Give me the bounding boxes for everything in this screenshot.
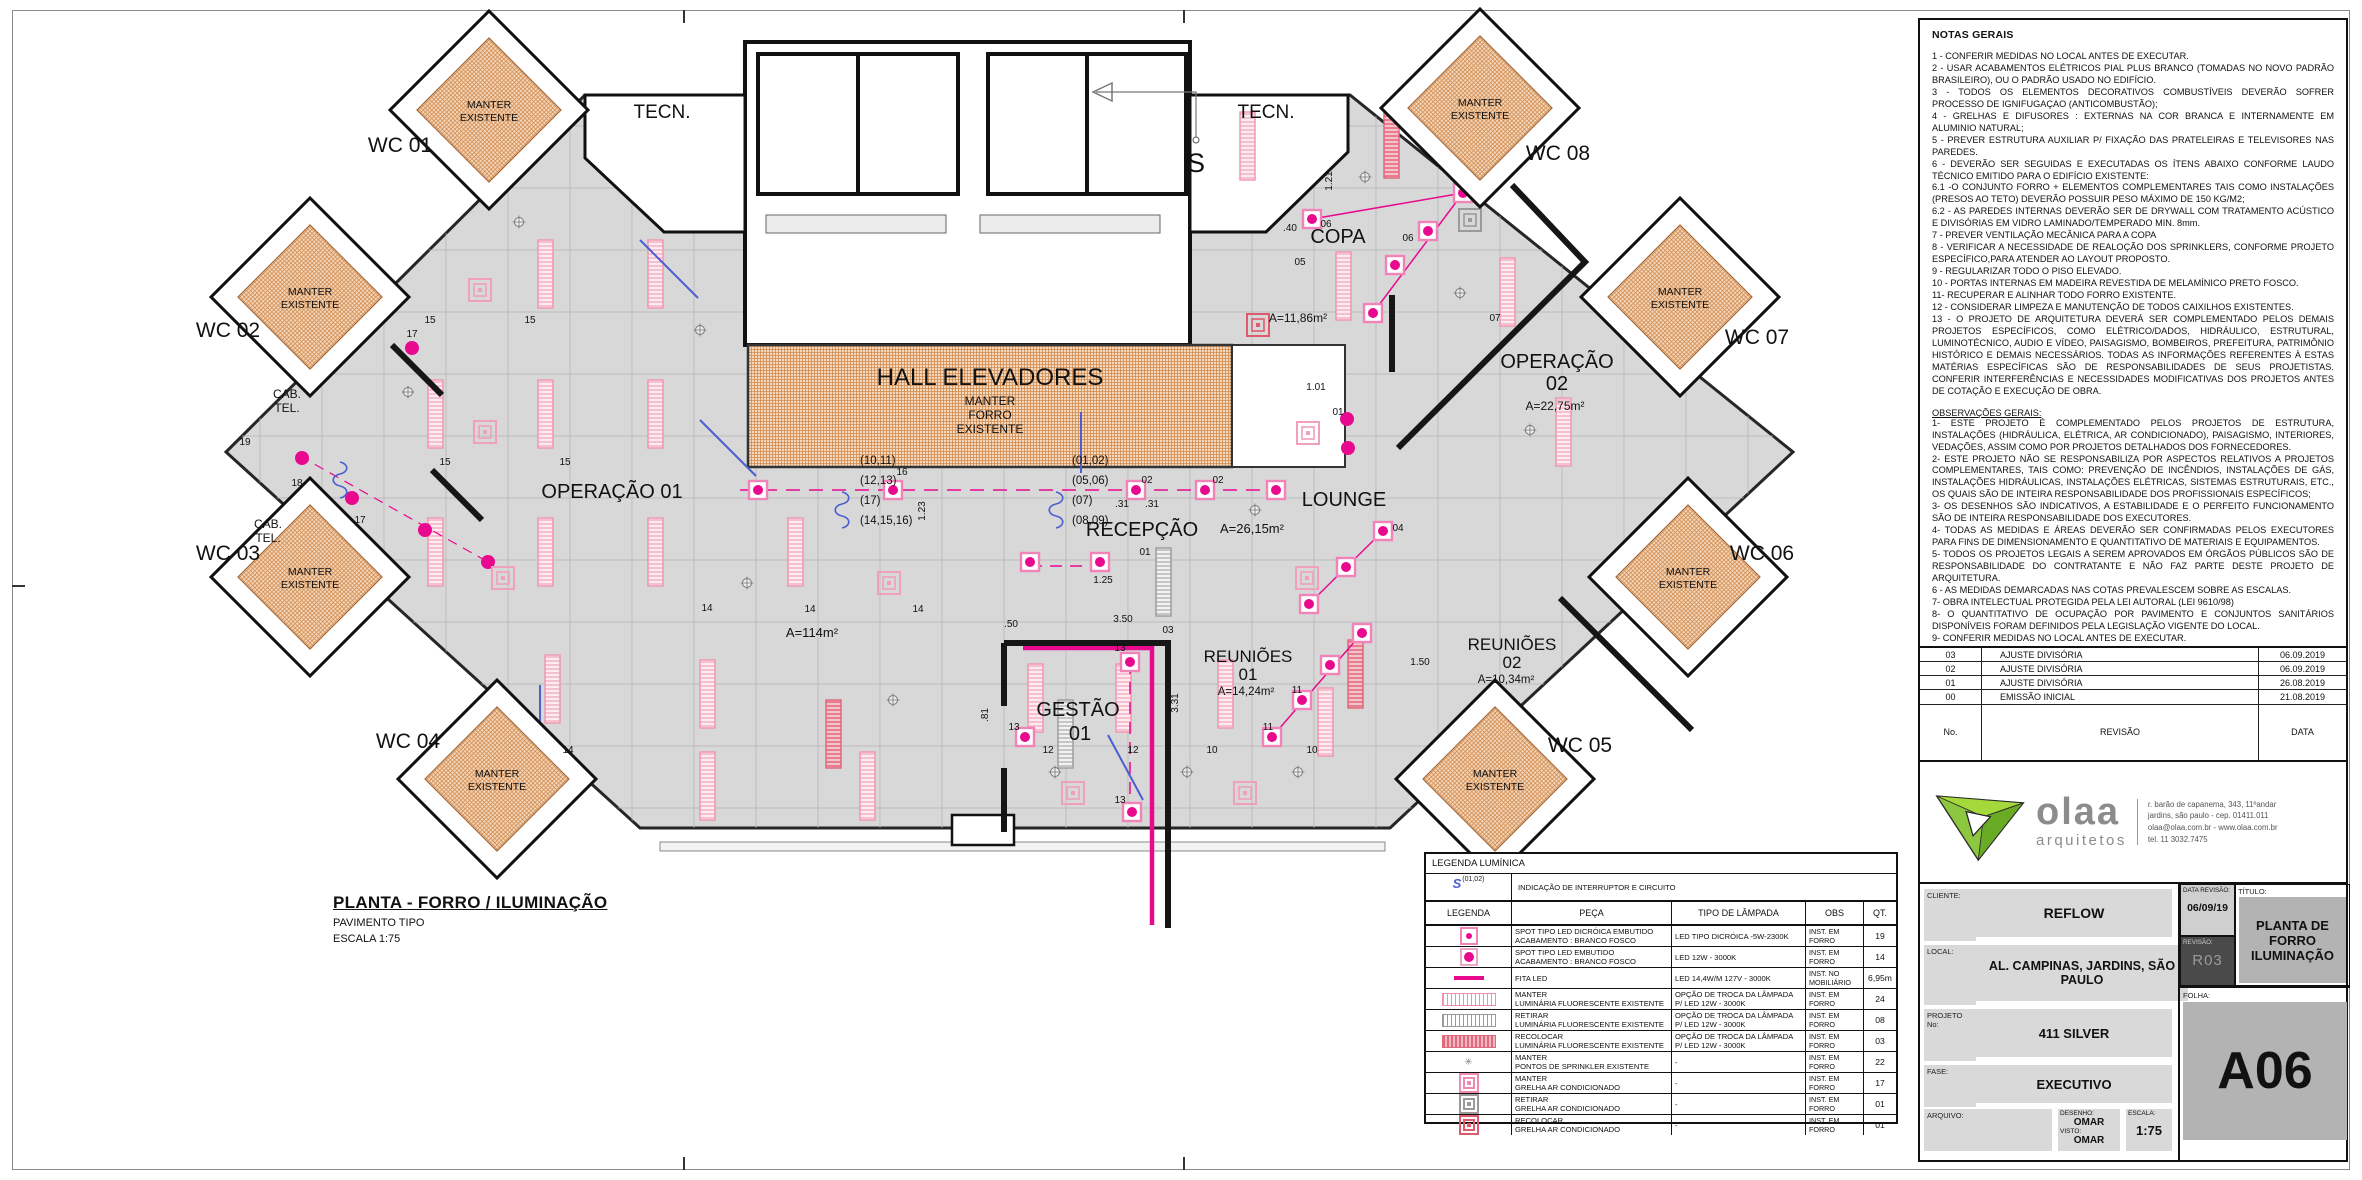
revision-description: EMISSÃO INICIAL bbox=[1982, 692, 2258, 702]
note-line: 5 - PREVER ESTRUTURA AUXILIAR P/ FIXAÇÃO… bbox=[1932, 135, 2334, 159]
note-line: 5- TODOS OS PROJETOS LEGAIS A SEREM APRO… bbox=[1932, 549, 2334, 585]
legend-peca: SPOT TIPO LED EMBUTIDOACABAMENTO : BRANC… bbox=[1512, 947, 1672, 967]
svg-text:03: 03 bbox=[1162, 625, 1174, 636]
legend-obs: INST. EM FORRO bbox=[1806, 926, 1864, 946]
legend-tipo: - bbox=[1672, 1052, 1806, 1072]
svg-text:MANTER: MANTER bbox=[288, 566, 333, 578]
revision-description: AJUSTE DIVISÓRIA bbox=[1982, 678, 2258, 688]
legend-row: SPOT TIPO LED EMBUTIDOACABAMENTO : BRANC… bbox=[1426, 947, 1896, 968]
svg-text:MANTER: MANTER bbox=[1658, 286, 1703, 298]
legend-tipo: - bbox=[1672, 1094, 1806, 1114]
escala-label: ESCALA: bbox=[2128, 1110, 2155, 1117]
note-line: 1 - CONFERIR MEDIDAS NO LOCAL ANTES DE E… bbox=[1932, 51, 2334, 63]
legend-peca: MANTERPONTOS DE SPRINKLER EXISTENTE bbox=[1512, 1052, 1672, 1072]
title-block: CLIENTE: REFLOW LOCAL: AL. CAMPINAS, JAR… bbox=[1920, 884, 2346, 1160]
legend-tipo: LED TIPO DICRÓICA -5W-2300K bbox=[1672, 926, 1806, 946]
note-line: 6 - DEVERÃO SER SEGUIDAS E EXECUTADAS OS… bbox=[1932, 159, 2334, 183]
note-line: 8 - VERIFICAR A NECESSIDADE DE REALOÇÃO … bbox=[1932, 242, 2334, 266]
revision-date: 26.08.2019 bbox=[2258, 676, 2346, 689]
legend-peca: RECOLOCARLUMINÁRIA FLUORESCENTE EXISTENT… bbox=[1512, 1031, 1672, 1051]
spot-led-icon bbox=[1426, 947, 1512, 967]
fluor-manter-icon bbox=[1426, 989, 1512, 1009]
spot-dicroica-icon bbox=[1426, 926, 1512, 946]
projeto-value: 411 SILVER bbox=[1976, 1009, 2172, 1057]
switch-legend-icon: S (01,02) bbox=[1426, 874, 1512, 900]
svg-text:A=10,34m²: A=10,34m² bbox=[1478, 674, 1535, 686]
svg-text:13: 13 bbox=[1008, 722, 1020, 733]
local-label: LOCAL: bbox=[1924, 945, 1976, 1005]
firm-logo-block: olaa arquitetos r. barão de capanema, 34… bbox=[1920, 762, 2346, 884]
svg-text:EXISTENTE: EXISTENTE bbox=[468, 781, 526, 793]
note-line: 8- O QUANTITATIVO DE OCUPAÇÃO POR PAVIME… bbox=[1932, 609, 2334, 633]
olaa-logo-icon bbox=[1928, 774, 2032, 870]
legend-tipo: OPÇÃO DE TROCA DA LÂMPADA P/ LED 12W - 3… bbox=[1672, 989, 1806, 1009]
legend-obs: INST. EM FORRO bbox=[1806, 1010, 1864, 1030]
svg-text:1.21: 1.21 bbox=[1324, 171, 1335, 191]
escala-value: 1:75 bbox=[2128, 1123, 2170, 1138]
svg-text:.31: .31 bbox=[1145, 499, 1159, 510]
svg-text:MANTER: MANTER bbox=[1473, 768, 1518, 780]
cab-tel-label: CAB. bbox=[273, 387, 301, 401]
revision-row: 03AJUSTE DIVISÓRIA06.09.2019 bbox=[1920, 648, 2346, 662]
legend-row: RETIRARLUMINÁRIA FLUORESCENTE EXISTENTEO… bbox=[1426, 1010, 1896, 1031]
sheet-info-panel: NOTAS GERAIS 1 - CONFERIR MEDIDAS NO LOC… bbox=[1918, 18, 2348, 1162]
svg-text:01: 01 bbox=[1139, 547, 1151, 558]
legend-tipo: LED 14,4W/M 127V - 3000K bbox=[1672, 968, 1806, 988]
legend-qty: 24 bbox=[1864, 994, 1896, 1004]
data-revisao-label: DATA REVISÃO: bbox=[2183, 887, 2232, 894]
svg-text:1.50: 1.50 bbox=[1410, 657, 1430, 668]
svg-text:10: 10 bbox=[1206, 745, 1218, 756]
visto-value: OMAR bbox=[2060, 1135, 2118, 1146]
svg-text:(12,13): (12,13) bbox=[860, 475, 897, 487]
fluor-retirar-icon bbox=[1426, 1010, 1512, 1030]
fluor-recolocar-icon bbox=[1426, 1031, 1512, 1051]
grelha-manter-icon bbox=[1426, 1073, 1512, 1093]
revision-date: 06.09.2019 bbox=[2258, 662, 2346, 675]
legend-peca: RETIRARGRELHA AR CONDICIONADO bbox=[1512, 1094, 1672, 1114]
svg-text:13: 13 bbox=[1114, 643, 1126, 654]
svg-text:S: S bbox=[1187, 148, 1205, 178]
revision-row: 01AJUSTE DIVISÓRIA26.08.2019 bbox=[1920, 676, 2346, 690]
wc02-label: WC 02 bbox=[196, 319, 260, 342]
svg-text:A=114m²: A=114m² bbox=[786, 625, 839, 640]
legend-qty: 6,95m bbox=[1864, 973, 1896, 983]
svg-text:MANTER: MANTER bbox=[1458, 97, 1503, 109]
revision-table: 03AJUSTE DIVISÓRIA06.09.201902AJUSTE DIV… bbox=[1920, 648, 2346, 762]
svg-text:MANTER: MANTER bbox=[1666, 566, 1711, 578]
revision-rows: 03AJUSTE DIVISÓRIA06.09.201902AJUSTE DIV… bbox=[1920, 648, 2346, 704]
svg-text:EXISTENTE: EXISTENTE bbox=[281, 299, 339, 311]
revision-description: AJUSTE DIVISÓRIA bbox=[1982, 664, 2258, 674]
svg-text:1.25: 1.25 bbox=[1093, 575, 1113, 586]
data-revisao-value: 06/09/19 bbox=[2183, 902, 2232, 914]
svg-text:14: 14 bbox=[912, 604, 924, 615]
fase-value: EXECUTIVO bbox=[1976, 1065, 2172, 1103]
firm-name-sub: arquitetos bbox=[2036, 832, 2127, 849]
cliente-value: REFLOW bbox=[1976, 889, 2172, 937]
gestao-label: GESTÃO bbox=[1036, 697, 1119, 721]
svg-text:1.01: 1.01 bbox=[1306, 382, 1326, 393]
projeto-label: PROJETO No: bbox=[1924, 1009, 1976, 1061]
note-line: 2 - USAR ACABAMENTOS ELÉTRICOS PIAL PLUS… bbox=[1932, 63, 2334, 87]
svg-text:06: 06 bbox=[1320, 219, 1332, 230]
legend-peca: MANTERGRELHA AR CONDICIONADO bbox=[1512, 1073, 1672, 1093]
wc01-label: WC 01 bbox=[368, 134, 432, 157]
wc06-label: WC 06 bbox=[1730, 542, 1794, 565]
operacao02-label: OPERAÇÃO bbox=[1500, 349, 1613, 373]
legend-row: RECOLOCARLUMINÁRIA FLUORESCENTE EXISTENT… bbox=[1426, 1031, 1896, 1052]
revision-footer: No. REVISÃO DATA bbox=[1920, 704, 2346, 761]
svg-text:TEL.: TEL. bbox=[274, 401, 299, 415]
note-line: 1- ESTE PROJETO É COMPLEMENTADO PELOS PR… bbox=[1932, 418, 2334, 454]
reunioes01-label: REUNIÕES bbox=[1204, 647, 1293, 666]
legend-peca: SPOT TIPO LED DICRÓICA EMBUTIDOACABAMENT… bbox=[1512, 926, 1672, 946]
svg-text:19: 19 bbox=[239, 437, 251, 448]
note-line: 3- OS DESENHOS SÃO INDICATIVOS, A ESTABI… bbox=[1932, 501, 2334, 525]
svg-text:13: 13 bbox=[1114, 795, 1126, 806]
balcony-strip bbox=[660, 842, 1385, 851]
legend-headers: LEGENDA PEÇA TIPO DE LÂMPADA OBS QT. bbox=[1426, 902, 1896, 926]
svg-text:14: 14 bbox=[804, 604, 816, 615]
legend-interruptor-desc: INDICAÇÃO DE INTERRUPTOR E CIRCUITO bbox=[1512, 883, 1896, 892]
svg-text:.81: .81 bbox=[980, 708, 991, 722]
svg-text:MANTER: MANTER bbox=[288, 286, 333, 298]
legend-peca: MANTERLUMINÁRIA FLUORESCENTE EXISTENTE bbox=[1512, 989, 1672, 1009]
fita-led-icon bbox=[1426, 968, 1512, 988]
legend-obs: INST. EM FORRO bbox=[1806, 1052, 1864, 1072]
legend-qty: 03 bbox=[1864, 1036, 1896, 1046]
svg-text:10: 10 bbox=[1306, 745, 1318, 756]
svg-text:(05,06): (05,06) bbox=[1072, 475, 1109, 487]
notes-list: 1 - CONFERIR MEDIDAS NO LOCAL ANTES DE E… bbox=[1932, 51, 2334, 398]
wc08-label: WC 08 bbox=[1526, 142, 1590, 165]
note-line: 6 - AS MEDIDAS DEMARCADAS NAS COTAS PREV… bbox=[1932, 585, 2334, 597]
desenho-value: OMAR bbox=[2060, 1117, 2118, 1128]
general-notes: NOTAS GERAIS 1 - CONFERIR MEDIDAS NO LOC… bbox=[1920, 20, 2346, 648]
revision-number: 00 bbox=[1920, 690, 1982, 703]
room-label-tecn-right: TECN. bbox=[1238, 102, 1295, 123]
legend-obs: INST. EM FORRO bbox=[1806, 989, 1864, 1009]
svg-text:A=11,86m²: A=11,86m² bbox=[1269, 311, 1327, 325]
svg-text:EXISTENTE: EXISTENTE bbox=[1451, 110, 1509, 122]
elevator-core bbox=[745, 42, 1190, 345]
legend-row: ✳MANTERPONTOS DE SPRINKLER EXISTENTE-INS… bbox=[1426, 1052, 1896, 1073]
svg-text:1.23: 1.23 bbox=[917, 501, 928, 521]
revision-date: 06.09.2019 bbox=[2258, 648, 2346, 661]
svg-text:02: 02 bbox=[1503, 653, 1522, 672]
revisao-cell: REVISÃO: R03 bbox=[2180, 936, 2235, 986]
svg-text:11: 11 bbox=[1292, 685, 1303, 696]
legend-obs: INST. EM FORRO bbox=[1806, 947, 1864, 967]
reunioes02-label: REUNIÕES bbox=[1468, 635, 1557, 654]
note-line: 10 - PORTAS INTERNAS EM MADEIRA REVESTID… bbox=[1932, 278, 2334, 290]
svg-text:EXISTENTE: EXISTENTE bbox=[1659, 579, 1717, 591]
legend-row: MANTERGRELHA AR CONDICIONADO-INST. EM FO… bbox=[1426, 1073, 1896, 1094]
legend-peca: RETIRARLUMINÁRIA FLUORESCENTE EXISTENTE bbox=[1512, 1010, 1672, 1030]
note-line: 4- TODAS AS MEDIDAS E ÁREAS DEVERÃO SER … bbox=[1932, 525, 2334, 549]
legend-tipo: - bbox=[1672, 1115, 1806, 1135]
grelha-retirar-icon bbox=[1426, 1094, 1512, 1114]
svg-text:02: 02 bbox=[1212, 475, 1224, 486]
firm-address: r. barão de capanema, 343, 11ºandar jard… bbox=[2137, 799, 2278, 846]
legend-qty: 01 bbox=[1864, 1120, 1896, 1130]
revisao-label: REVISÃO: bbox=[2183, 939, 2232, 946]
legend-tipo: OPÇÃO DE TROCA DA LÂMPADA P/ LED 12W - 3… bbox=[1672, 1031, 1806, 1051]
lounge-label: LOUNGE bbox=[1302, 489, 1386, 511]
legend-peca: FITA LED bbox=[1512, 968, 1672, 988]
svg-text:.31: .31 bbox=[1115, 499, 1129, 510]
visto-label: VISTO: bbox=[2060, 1128, 2081, 1135]
svg-text:06: 06 bbox=[1402, 233, 1414, 244]
legend-obs: INST. EM FORRO bbox=[1806, 1031, 1864, 1051]
observations-title: OBSERVAÇÕES GERAIS: bbox=[1932, 408, 2334, 418]
note-line: 4 - GRELHAS E DIFUSORES : EXTERNAS NA CO… bbox=[1932, 111, 2334, 135]
data-revisao-cell: DATA REVISÃO: 06/09/19 bbox=[2180, 884, 2235, 936]
legend-obs: INST. NO MOBILIÁRIO bbox=[1806, 968, 1864, 988]
svg-text:12: 12 bbox=[1042, 745, 1054, 756]
revision-description: AJUSTE DIVISÓRIA bbox=[1982, 650, 2258, 660]
legend-row: RETIRARGRELHA AR CONDICIONADO-INST. EM F… bbox=[1426, 1094, 1896, 1115]
legend-qty: 01 bbox=[1864, 1099, 1896, 1109]
desenho-label: DESENHO: bbox=[2060, 1110, 2094, 1117]
svg-text:17: 17 bbox=[354, 515, 366, 526]
wc04-label: WC 04 bbox=[376, 730, 441, 753]
svg-text:17: 17 bbox=[406, 329, 418, 340]
revision-number: 01 bbox=[1920, 676, 1982, 689]
drawing-title-text: PLANTA - FORRO / ILUMINAÇÃO bbox=[333, 893, 663, 913]
note-line: 2- ESTE PROJETO NÃO SE RESPONSABILIZA PO… bbox=[1932, 454, 2334, 502]
wc03-label: WC 03 bbox=[196, 542, 260, 565]
desenho-visto-cell: DESENHO: OMAR VISTO: OMAR bbox=[2058, 1109, 2120, 1151]
legend-row: FITA LEDLED 14,4W/M 127V - 3000KINST. NO… bbox=[1426, 968, 1896, 989]
note-line: 7- OBRA INTELECTUAL PROTEGIDA PELA LEI A… bbox=[1932, 597, 2334, 609]
svg-text:TEL.: TEL. bbox=[255, 531, 280, 545]
svg-text:MANTER: MANTER bbox=[475, 768, 520, 780]
cab-tel-label2: CAB. bbox=[254, 517, 282, 531]
revision-row: 02AJUSTE DIVISÓRIA06.09.2019 bbox=[1920, 662, 2346, 676]
svg-text:01: 01 bbox=[1239, 665, 1258, 684]
titulo-label: TÍTULO: bbox=[2238, 887, 2347, 896]
revisao-value: R03 bbox=[2183, 952, 2232, 969]
revision-date: 21.08.2019 bbox=[2258, 690, 2346, 703]
arquivo-cell: ARQUIVO: bbox=[1924, 1109, 2052, 1151]
svg-text:.50: .50 bbox=[1004, 619, 1018, 630]
svg-text:(10,11): (10,11) bbox=[860, 455, 896, 467]
revision-row: 00EMISSÃO INICIAL21.08.2019 bbox=[1920, 690, 2346, 703]
grelha-recolocar-icon bbox=[1426, 1115, 1512, 1135]
fase-label: FASE: bbox=[1924, 1065, 1976, 1107]
svg-text:A=26,15m²: A=26,15m² bbox=[1220, 521, 1285, 536]
cliente-label: CLIENTE: bbox=[1924, 889, 1976, 941]
firm-name: olaa bbox=[2036, 795, 2127, 829]
folha-label: FOLHA: bbox=[2183, 991, 2347, 1000]
svg-text:A=14,24m²: A=14,24m² bbox=[1218, 686, 1275, 698]
note-line: 9- CONFERIR MEDIDAS NO LOCAL ANTES DE EX… bbox=[1932, 633, 2334, 645]
svg-text:01: 01 bbox=[1332, 407, 1344, 418]
note-line: 6.1 -O CONJUNTO FORRO + ELEMENTOS COMPLE… bbox=[1932, 182, 2334, 206]
svg-text:05: 05 bbox=[1294, 257, 1306, 268]
legend-tipo: OPÇÃO DE TROCA DA LÂMPADA P/ LED 12W - 3… bbox=[1672, 1010, 1806, 1030]
svg-text:EXISTENTE: EXISTENTE bbox=[460, 112, 518, 124]
obs-list: 1- ESTE PROJETO É COMPLEMENTADO PELOS PR… bbox=[1932, 418, 2334, 648]
notes-title: NOTAS GERAIS bbox=[1932, 29, 2334, 41]
note-line: 13 - O PROJETO DE ARQUITETURA DEVERÁ SER… bbox=[1932, 314, 2334, 398]
legend-qty: 14 bbox=[1864, 952, 1896, 962]
note-line: 12 - CONSIDERAR LIMPEZA E MANUTENÇÃO DE … bbox=[1932, 302, 2334, 314]
svg-text:14: 14 bbox=[701, 603, 713, 614]
legend-obs: INST. EM FORRO bbox=[1806, 1094, 1864, 1114]
svg-text:EXISTENTE: EXISTENTE bbox=[1651, 299, 1709, 311]
svg-text:(07): (07) bbox=[1072, 495, 1093, 507]
folha-cell: FOLHA: A06 bbox=[2180, 986, 2350, 1154]
firm-wordmark: olaa arquitetos bbox=[2036, 795, 2127, 848]
note-line: 9 - REGULARIZAR TODO O PISO ELEVADO. bbox=[1932, 266, 2334, 278]
svg-text:15: 15 bbox=[524, 315, 536, 326]
legend-row: RECOLOCARGRELHA AR CONDICIONADO-INST. EM… bbox=[1426, 1115, 1896, 1135]
revision-number: 03 bbox=[1920, 648, 1982, 661]
drawing-title: PLANTA - FORRO / ILUMINAÇÃO PAVIMENTO TI… bbox=[333, 893, 663, 945]
svg-text:18: 18 bbox=[291, 478, 303, 489]
svg-text:02: 02 bbox=[1546, 373, 1568, 395]
titulo-value: PLANTA DE FORRO ILUMINAÇÃO bbox=[2239, 897, 2346, 983]
titulo-cell: TÍTULO: PLANTA DE FORRO ILUMINAÇÃO bbox=[2235, 884, 2350, 986]
folha-value: A06 bbox=[2183, 1002, 2347, 1140]
note-line: 3 - TODOS OS ELEMENTOS DECORATIVOS COMBU… bbox=[1932, 87, 2334, 111]
legend-tipo: - bbox=[1672, 1073, 1806, 1093]
escala-cell: ESCALA: 1:75 bbox=[2126, 1109, 2172, 1151]
note-line: 7 - PREVER VENTILAÇÃO MECÂNICA PARA A CO… bbox=[1932, 230, 2334, 242]
legend-qty: 17 bbox=[1864, 1078, 1896, 1088]
svg-text:15: 15 bbox=[439, 457, 451, 468]
svg-text:15: 15 bbox=[424, 315, 436, 326]
svg-text:A=22,75m²: A=22,75m² bbox=[1525, 399, 1584, 413]
hall-label: HALL ELEVADORES bbox=[877, 364, 1104, 391]
legend-row: SPOT TIPO LED DICRÓICA EMBUTIDOACABAMENT… bbox=[1426, 926, 1896, 947]
arquivo-label: ARQUIVO: bbox=[1924, 1109, 1967, 1122]
svg-text:EXISTENTE: EXISTENTE bbox=[957, 422, 1024, 436]
wc07-label: WC 07 bbox=[1725, 326, 1789, 349]
copa-label: COPA bbox=[1310, 226, 1366, 248]
legend-obs: INST. EM FORRO bbox=[1806, 1073, 1864, 1093]
legend-obs: INST. EM FORRO bbox=[1806, 1115, 1864, 1135]
svg-text:3.31: 3.31 bbox=[1170, 693, 1181, 713]
legend-qty: 22 bbox=[1864, 1057, 1896, 1067]
svg-text:3.50: 3.50 bbox=[1113, 614, 1133, 625]
legend-tipo: LED 12W - 3000K bbox=[1672, 947, 1806, 967]
svg-text:12: 12 bbox=[1127, 745, 1139, 756]
svg-text:EXISTENTE: EXISTENTE bbox=[1466, 781, 1524, 793]
note-line: 6.2 - AS PAREDES INTERNAS DEVERÃO SER DE… bbox=[1932, 206, 2334, 230]
local-value: AL. CAMPINAS, JARDINS, SÃO PAULO bbox=[1976, 945, 2188, 1001]
drawing-subtitle: PAVIMENTO TIPO bbox=[333, 917, 663, 929]
legend-table: LEGENDA LUMÍNICA S (01,02) INDICAÇÃO DE … bbox=[1424, 852, 1898, 1124]
legend-title: LEGENDA LUMÍNICA bbox=[1426, 854, 1896, 874]
sprinkler-icon: ✳ bbox=[1426, 1052, 1512, 1072]
svg-text:14: 14 bbox=[562, 745, 574, 756]
note-line: 11- RECUPERAR E ALINHAR TODO FORRO EXIST… bbox=[1932, 290, 2334, 302]
svg-text:01: 01 bbox=[1069, 723, 1091, 745]
svg-text:02: 02 bbox=[1141, 475, 1153, 486]
svg-text:FORRO: FORRO bbox=[968, 408, 1011, 422]
svg-text:.40: .40 bbox=[1283, 223, 1297, 234]
legend-peca: RECOLOCARGRELHA AR CONDICIONADO bbox=[1512, 1115, 1672, 1135]
legend-row: MANTERLUMINÁRIA FLUORESCENTE EXISTENTEOP… bbox=[1426, 989, 1896, 1010]
svg-text:MANTER: MANTER bbox=[965, 394, 1016, 408]
svg-text:(08,09): (08,09) bbox=[1072, 515, 1109, 527]
svg-text:MANTER: MANTER bbox=[467, 99, 512, 111]
svg-text:EXISTENTE: EXISTENTE bbox=[281, 579, 339, 591]
operacao01-label: OPERAÇÃO 01 bbox=[541, 479, 682, 503]
svg-text:04: 04 bbox=[1392, 523, 1404, 534]
drawing-scale: ESCALA 1:75 bbox=[333, 933, 663, 945]
revision-number: 02 bbox=[1920, 662, 1982, 675]
svg-text:16: 16 bbox=[896, 467, 908, 478]
wc05-label: WC 05 bbox=[1548, 734, 1612, 757]
svg-text:(01,02): (01,02) bbox=[1072, 455, 1109, 467]
svg-text:(17): (17) bbox=[860, 495, 881, 507]
legend-rows: SPOT TIPO LED DICRÓICA EMBUTIDOACABAMENT… bbox=[1426, 926, 1896, 1135]
legend-qty: 19 bbox=[1864, 931, 1896, 941]
svg-text:(14,15,16): (14,15,16) bbox=[860, 515, 913, 527]
svg-text:15: 15 bbox=[559, 457, 571, 468]
svg-text:11: 11 bbox=[1263, 722, 1274, 733]
room-label-tecn-left: TECN. bbox=[634, 102, 691, 123]
legend-qty: 08 bbox=[1864, 1015, 1896, 1025]
svg-text:07: 07 bbox=[1489, 313, 1501, 324]
